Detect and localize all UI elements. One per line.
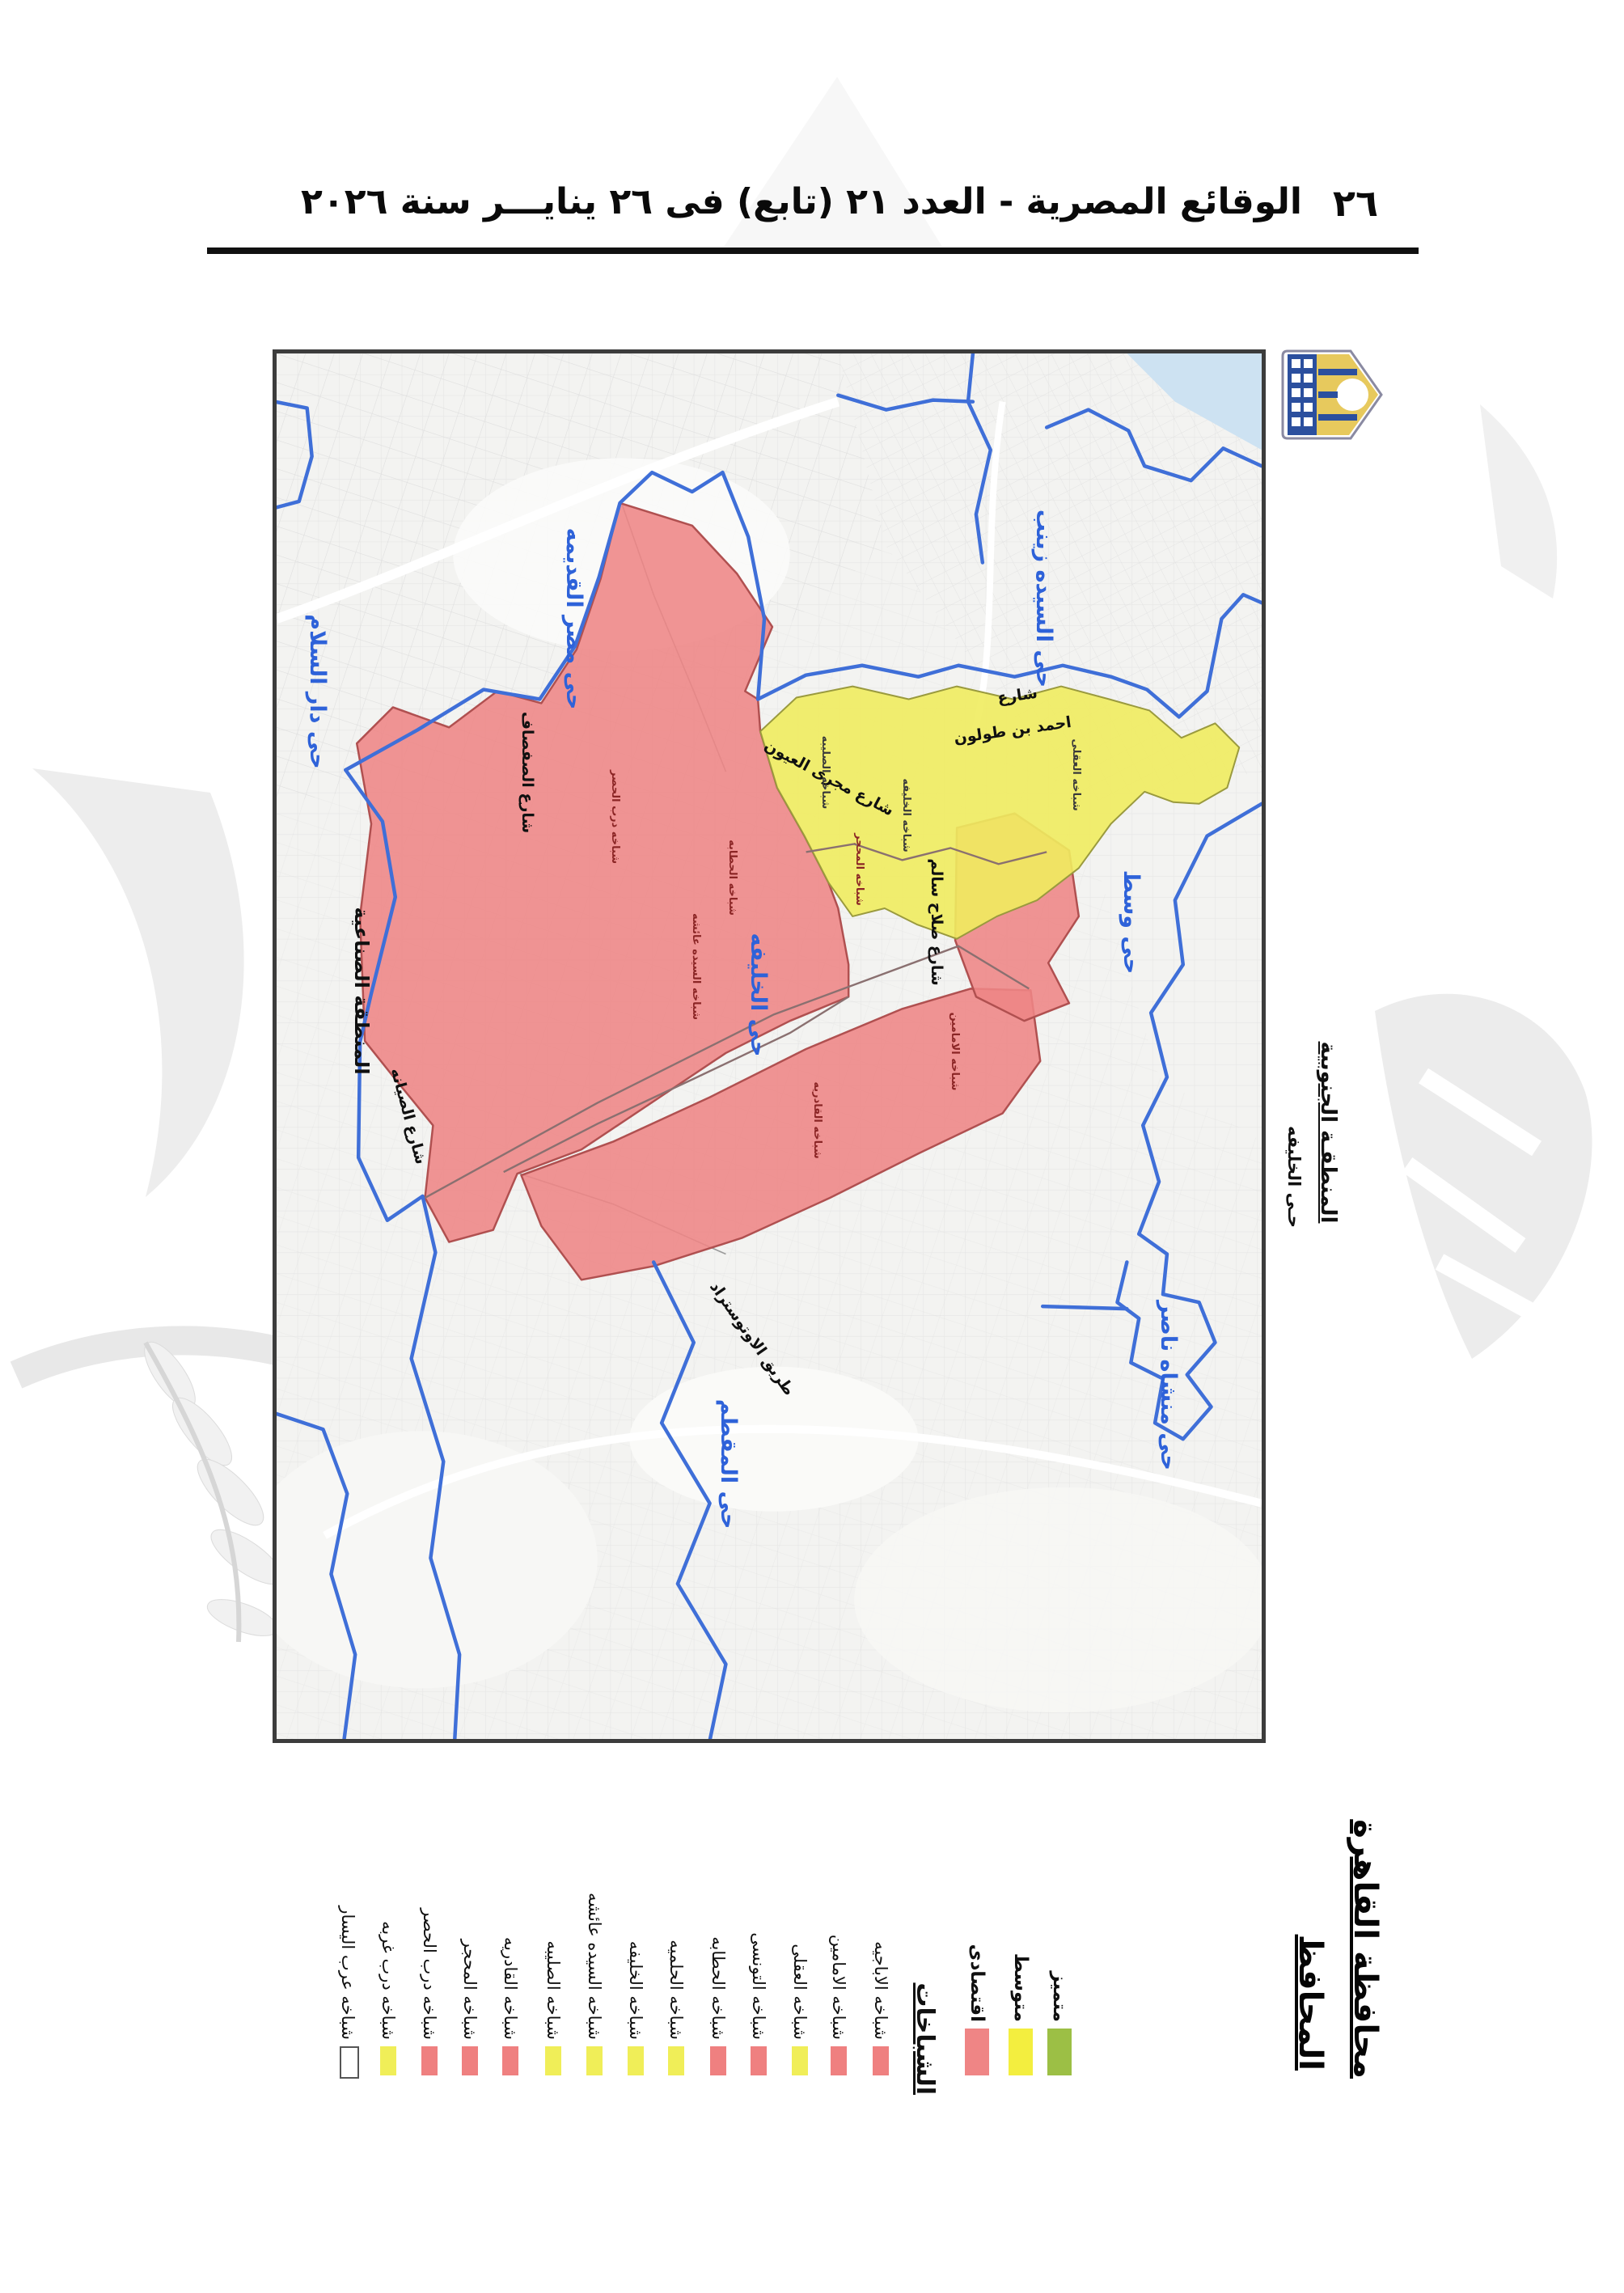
quality-level-label: متوسط: [1009, 1763, 1033, 2022]
legend-item-swatch: [668, 2046, 684, 2075]
map-canvas: [277, 353, 1262, 1739]
legend-item-swatch: [792, 2046, 808, 2075]
legend-item-swatch: [421, 2046, 438, 2075]
cairo-districts-map: [273, 349, 1266, 1743]
legend-item-swatch: [340, 2046, 359, 2079]
legend-item-swatch: [545, 2046, 561, 2075]
quality-level-swatch: [1047, 2029, 1072, 2075]
watermark-shape: [1407, 1076, 1537, 1310]
header-rule: [207, 247, 1419, 254]
region-label: المنطقـة الجنوبية: [1315, 954, 1341, 1310]
legend-item-label: شباخه الخليفه: [625, 1732, 646, 2040]
legend-item-swatch: [380, 2046, 396, 2075]
legend-item-swatch: [873, 2046, 889, 2075]
legend-item-label: شباخه الحطابه: [708, 1732, 729, 2040]
header-title: الوقائع المصرية - العدد ٢١ (تابع) فى ٢٦ …: [324, 181, 1302, 230]
legend-item-label: شباخه الامامين: [828, 1732, 849, 2040]
watermark-laurel: [136, 1335, 290, 1643]
legend-item-swatch: [586, 2046, 603, 2075]
official-title: محافظة القاهرة: [1346, 1626, 1385, 2079]
region-label: حـى الخليفه: [1281, 999, 1307, 1355]
legend-item-label: شباخه درب الحصر: [419, 1732, 440, 2040]
legend-title: الشباخات: [909, 1787, 940, 2095]
quality-level-label: اقتصادى: [965, 1763, 989, 2022]
quality-level-swatch: [965, 2029, 989, 2075]
quality-level-label: متميز: [1047, 1763, 1072, 2022]
legend-item-swatch: [751, 2046, 767, 2075]
legend-item-label: شباخه الاباجيه: [870, 1732, 891, 2040]
legend-item-label: شباخه عرب اليسار: [337, 1732, 358, 2040]
legend-item-swatch: [628, 2046, 644, 2075]
legend-item-label: شباخه الحلميه: [666, 1732, 687, 2040]
legend-item-swatch: [831, 2046, 847, 2075]
legend-item-label: شباخه درب غربه: [378, 1732, 399, 2040]
legend-item-label: شباخه التونسى: [748, 1732, 769, 2040]
quality-level-swatch: [1009, 2029, 1033, 2075]
watermark-shape: [1480, 404, 1557, 599]
legend-item-label: شباخه السيده عائشه: [584, 1732, 605, 2040]
legend-item-label: شباخه الصليبه: [543, 1732, 564, 2040]
legend-item-label: شباخه العقلى: [789, 1732, 810, 2040]
legend-item-swatch: [462, 2046, 478, 2075]
gazette-page: الوقائع المصرية - العدد ٢١ (تابع) فى ٢٦ …: [0, 0, 1624, 2293]
legend-item-swatch: [502, 2046, 518, 2075]
official-title: المحافظ: [1291, 1618, 1330, 2071]
page-number: ٢٦: [1317, 181, 1394, 230]
governorate-emblem-icon: [1279, 346, 1386, 443]
legend-item-label: شباخه المحجر: [459, 1732, 480, 2040]
legend-item-swatch: [710, 2046, 726, 2075]
legend-item-label: شباخه القادريه: [500, 1732, 521, 2040]
watermark-eagle: [1375, 994, 1592, 1359]
watermark-shape: [32, 768, 244, 1197]
